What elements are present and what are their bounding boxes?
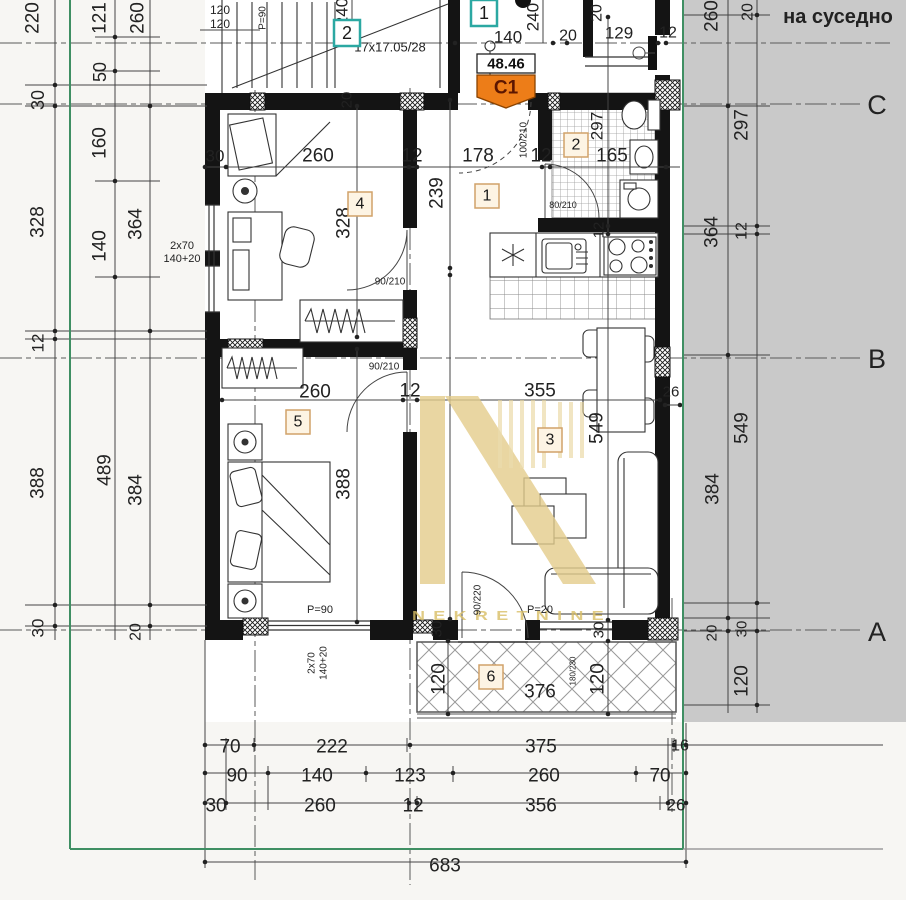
dim-label: 50 (90, 62, 110, 82)
room-tag: 5 (286, 410, 310, 434)
room-tag: 2 (564, 133, 588, 157)
dim-label: 90/210 (375, 277, 406, 288)
dimension-tick (634, 771, 639, 776)
dim-label: 388 (334, 468, 355, 500)
dim-label: 90/220 (473, 584, 484, 615)
stair-tag-number: 1 (479, 3, 489, 23)
dim-label: 123 (394, 766, 426, 787)
dimension-tick (220, 398, 225, 403)
room-tag-number: 3 (546, 432, 555, 449)
dimension-tick (408, 743, 413, 748)
dimension-tick (678, 403, 683, 408)
dimension-tick (755, 224, 760, 229)
dimension-tick (726, 616, 731, 621)
dim-label: 364 (126, 208, 147, 240)
dimension-tick (203, 860, 208, 865)
dimension-tick (113, 69, 118, 74)
dimension-tick (606, 639, 611, 644)
dim-label: 120 (210, 17, 230, 31)
dim-label: 20 (589, 4, 606, 22)
dimension-tick (448, 266, 453, 271)
dim-label: 384 (703, 473, 724, 505)
dimension-tick (448, 273, 453, 278)
dimension-tick (148, 104, 153, 109)
dimension-tick (726, 629, 731, 634)
dim-label: 120 (732, 665, 753, 697)
dim-label: 12 (530, 146, 551, 167)
dim-label: 489 (95, 454, 116, 486)
dimension-tick (113, 275, 118, 280)
dim-label: 240 (524, 3, 543, 31)
dimension-tick (684, 860, 689, 865)
dim-label: P=20 (527, 604, 553, 616)
dim-label: 165 (596, 146, 628, 167)
dim-label: P=90 (258, 6, 269, 30)
floor-plan-page: 48.46 C1 NEKRETNINE 22012126030501603283… (0, 0, 906, 900)
dimension-tick (606, 712, 611, 717)
kitchen (490, 233, 658, 277)
dimension-tick (726, 104, 731, 109)
dim-label: 364 (702, 216, 723, 248)
dim-label: 20 (339, 92, 356, 109)
dim-label: 20 (704, 625, 721, 642)
dimension-tick (53, 337, 58, 342)
dimension-tick (664, 165, 669, 170)
dim-label: 260 (304, 796, 336, 817)
dimension-tick (53, 624, 58, 629)
dim-label: 260 (528, 766, 560, 787)
dim-label: 12 (591, 222, 608, 239)
dim-label: 375 (525, 737, 557, 758)
dim-label: 20 (740, 3, 757, 21)
dim-label: 12 (29, 334, 48, 353)
dim-label: 30 (28, 90, 48, 110)
dimension-tick (755, 703, 760, 708)
unit-badge: 48.46 C1 (477, 54, 535, 108)
dimension-tick (355, 347, 360, 352)
dim-label: 17x17.05/28 (354, 40, 426, 55)
dim-label: 140 (301, 766, 333, 787)
dimension-tick (446, 639, 451, 644)
dim-label: 100/210 (519, 121, 530, 158)
dimension-tick (113, 179, 118, 184)
dimension-tick (755, 601, 760, 606)
toilet (622, 101, 646, 129)
dim-label: 140 (494, 28, 522, 47)
room-tag: 6 (479, 665, 503, 689)
dim-label: 388 (28, 467, 49, 499)
room-tag-number: 2 (572, 137, 581, 154)
dim-label: 356 (525, 796, 557, 817)
dimension-tick (53, 104, 58, 109)
dim-label: C (867, 90, 887, 120)
room-tag: 3 (538, 428, 562, 452)
dim-label: 20 (128, 623, 145, 641)
dimension-tick (148, 603, 153, 608)
unit-code-label: C1 (494, 78, 519, 99)
floor-plan-svg: 48.46 C1 NEKRETNINE 22012126030501603283… (0, 0, 906, 900)
dim-label: 549 (587, 412, 608, 444)
dim-label: 297 (588, 112, 607, 140)
dim-label: 121 (90, 2, 111, 34)
stair-tag-number: 2 (342, 23, 352, 43)
kitchen-tile-floor (490, 277, 658, 319)
dim-label: 683 (429, 856, 461, 877)
dim-label: 120 (588, 663, 609, 695)
dim-label: 260 (302, 146, 334, 167)
dim-label: 549 (732, 412, 753, 444)
dim-label: A (868, 617, 886, 647)
dim-label: 160 (90, 127, 111, 159)
dim-label: 140+20 (319, 646, 330, 680)
dimension-tick (53, 83, 58, 88)
stair-tag: 1 (471, 0, 497, 26)
dimension-tick (684, 771, 689, 776)
dimension-tick (148, 624, 153, 629)
dim-label: 297 (732, 109, 753, 141)
room-tag-number: 1 (483, 188, 492, 205)
dim-label: 384 (126, 474, 147, 506)
dimension-tick (453, 41, 458, 46)
dim-label: 30 (29, 619, 48, 638)
dimension-tick (446, 712, 451, 717)
dim-label: 12 (399, 381, 420, 402)
dim-label: 90/210 (369, 362, 400, 373)
dimension-tick (355, 335, 360, 340)
dimension-tick (663, 403, 668, 408)
dim-label: 120 (210, 3, 230, 17)
dim-label: P=90 (307, 604, 333, 616)
dimension-tick (451, 771, 456, 776)
dim-label: B (868, 344, 886, 374)
dimension-tick (203, 743, 208, 748)
dim-label: 26 (667, 796, 686, 815)
dim-label: 30 (206, 147, 225, 166)
dim-label: 80/210 (549, 200, 577, 210)
dim-label: 30 (734, 621, 751, 638)
dimension-tick (266, 771, 271, 776)
dim-label: 178 (462, 146, 494, 167)
dim-label: 12 (659, 25, 677, 42)
dimension-tick (726, 353, 731, 358)
dim-label: 222 (316, 737, 348, 758)
dim-label: 12 (401, 146, 422, 167)
dim-label: 12 (734, 222, 751, 240)
unit-area-label: 48.46 (487, 56, 525, 73)
room-tag-number: 6 (487, 669, 496, 686)
stair-tag: 2 (334, 20, 360, 46)
room-tag-number: 4 (356, 196, 365, 213)
dim-label: 70 (219, 737, 240, 758)
dim-label: 260 (702, 0, 723, 32)
dimension-tick (755, 232, 760, 237)
dim-label: 20 (559, 28, 577, 45)
dim-label: 260 (299, 382, 331, 403)
dimension-tick (355, 620, 360, 625)
dimension-tick (148, 329, 153, 334)
dim-label: 2x70 (170, 240, 194, 252)
dim-label: 376 (524, 682, 556, 703)
dim-label: 180/230 (569, 656, 578, 685)
dimension-tick (658, 398, 663, 403)
dim-label: 12 (402, 796, 423, 817)
dimension-tick (252, 743, 257, 748)
dimension-tick (53, 329, 58, 334)
dim-label: 70 (649, 766, 670, 787)
dim-label: 90 (226, 766, 247, 787)
dimension-tick (113, 35, 118, 40)
dimension-tick (755, 629, 760, 634)
dim-label: 26 (663, 384, 680, 401)
dimension-tick (203, 771, 208, 776)
dimension-tick (606, 15, 611, 20)
dim-label: 328 (28, 206, 49, 238)
dim-label: 2x70 (307, 652, 318, 674)
dim-label: 239 (427, 177, 448, 209)
dim-label: 220 (23, 2, 44, 34)
dimension-tick (53, 603, 58, 608)
dimension-tick (364, 771, 369, 776)
dimension-tick (448, 98, 453, 103)
dim-label: на суседно (783, 6, 893, 28)
dim-label: 120 (429, 663, 450, 695)
room-tag: 1 (475, 184, 499, 208)
room-tag: 4 (348, 192, 372, 216)
dim-label: 30 (429, 621, 446, 638)
dim-label: 30 (591, 622, 608, 639)
dim-label: 140+20 (163, 253, 200, 265)
dim-label: 260 (128, 2, 149, 34)
dimension-tick (551, 41, 556, 46)
dim-label: 140 (90, 230, 111, 262)
room-tag-number: 5 (294, 414, 303, 431)
dim-label: 30 (205, 796, 226, 817)
dim-label: 16 (671, 738, 689, 755)
dim-label: 129 (605, 24, 633, 43)
dim-label: 355 (524, 381, 556, 402)
